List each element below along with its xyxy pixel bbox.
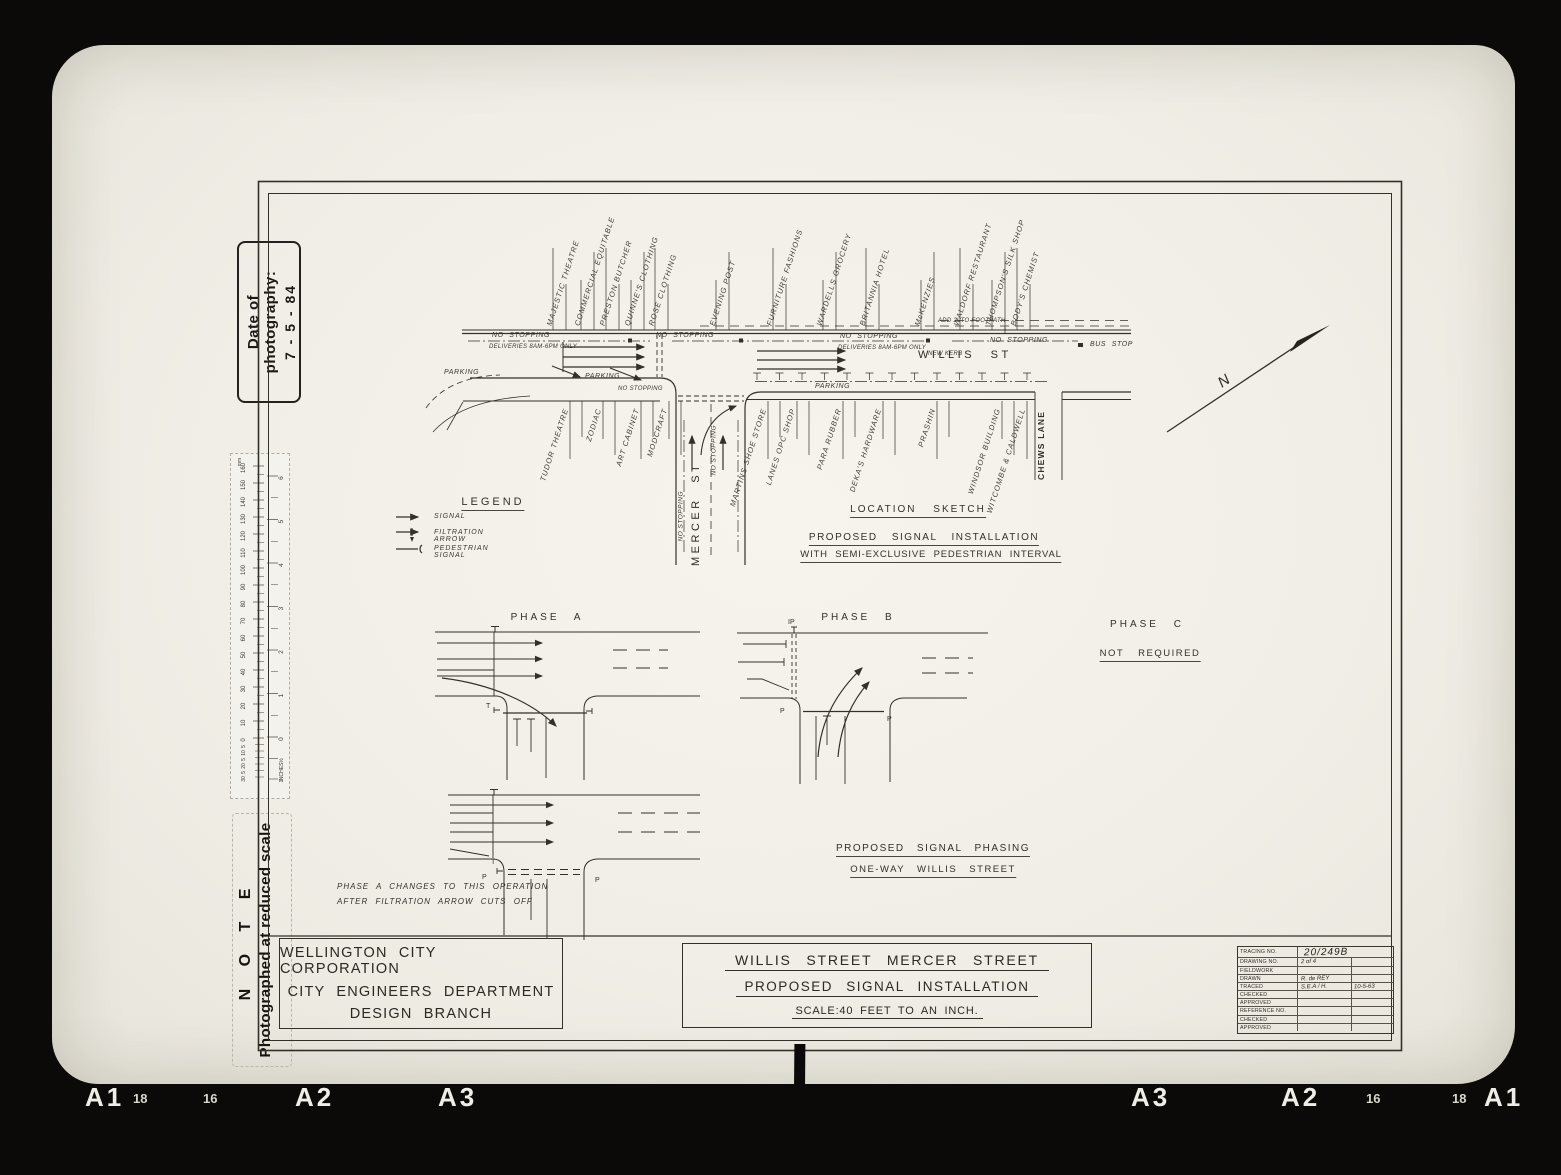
drawing-title-line2: PROPOSED SIGNAL INSTALLATION xyxy=(736,979,1037,997)
phase-b-label: PHASE B xyxy=(821,612,894,623)
drawing-title-box: WILLIS STREET MERCER STREET PROPOSED SIG… xyxy=(682,943,1092,1028)
tracing-row: CHECKED xyxy=(1238,1016,1393,1024)
street-annotation-vertical: CHEWS LANE xyxy=(1036,411,1046,480)
tracing-row-valuecell xyxy=(1298,1016,1351,1023)
tracing-table: TRACING NO.20/249BDRAWING NO.2 of 4FIELD… xyxy=(1237,946,1394,1034)
tracing-row-valuecell2 xyxy=(1351,1024,1393,1031)
film-notch xyxy=(794,1044,806,1136)
building-label-south: LANES OPC SHOP xyxy=(764,407,797,486)
legend-title: LEGEND xyxy=(461,496,524,511)
tracing-row-value: 2 of 4 xyxy=(1301,959,1316,966)
tracing-row-valuecell xyxy=(1298,1024,1351,1031)
org-line2: CITY ENGINEERS DEPARTMENT xyxy=(288,984,555,1000)
street-annotation-vertical: NO STOPPING xyxy=(678,491,685,542)
tracing-row-label: CHECKED xyxy=(1238,991,1298,998)
tracing-row-label: FIELDWORK xyxy=(1238,967,1298,974)
organisation-box: WELLINGTON CITY CORPORATION CITY ENGINEE… xyxy=(279,938,563,1029)
tracing-row-valuecell2 xyxy=(1351,967,1393,974)
filtration-arrow-icon xyxy=(394,527,428,543)
tracing-row-valuecell2: 10-5-63 xyxy=(1351,983,1393,990)
tracing-row-label: DRAWING NO. xyxy=(1238,958,1298,966)
tracing-row: TRACING NO.20/249B xyxy=(1238,947,1393,958)
tracing-row-valuecell xyxy=(1298,1007,1351,1015)
building-label-north: FURNITURE FASHIONS xyxy=(765,228,805,327)
proposed-signal-heading: PROPOSED SIGNAL INSTALLATION xyxy=(809,532,1039,546)
street-annotation: BUS STOP xyxy=(1090,341,1133,348)
signal-phasing-heading: PROPOSED SIGNAL PHASING xyxy=(836,843,1030,857)
tracing-row-valuecell2 xyxy=(1351,1007,1393,1015)
building-label-north: McKENZIES xyxy=(913,276,937,327)
signal-arrow-icon xyxy=(394,511,428,523)
pedestrian-interval-heading: WITH SEMI-EXCLUSIVE PEDESTRIAN INTERVAL xyxy=(800,549,1061,563)
building-label-south: PRASHIN xyxy=(916,407,937,448)
tracing-row-valuecell: R. de REY xyxy=(1298,975,1351,982)
tracing-row-value2: 10-5-63 xyxy=(1354,983,1375,990)
tracing-row-valuecell: 2 of 4 xyxy=(1298,958,1351,966)
tracing-row: DRAWING NO.2 of 4 xyxy=(1238,958,1393,967)
photographed-drawing: Date of photography: 7 - 5 - 84 16015014… xyxy=(0,0,1561,1175)
building-label-north: BODY'S CHEMIST xyxy=(1009,250,1042,327)
tracing-row-valuecell: S.E.A / H. xyxy=(1298,983,1351,990)
tracing-row-valuecell2 xyxy=(1351,999,1393,1006)
drawing-scale: SCALE:40 FEET TO AN INCH. xyxy=(792,1005,983,1019)
pedestrian-signal-icon xyxy=(394,543,428,555)
tracing-row-label: TRACED xyxy=(1238,983,1298,990)
legend-label: PEDESTRIAN SIGNAL xyxy=(434,545,489,559)
building-label-north: EVENING POST xyxy=(708,259,738,327)
tracing-row: CHECKED xyxy=(1238,991,1393,999)
legend-label: FILTRATION ARROW xyxy=(434,529,484,543)
location-sketch-heading: LOCATION SKETCH xyxy=(850,504,986,518)
tracing-row-label: CHECKED xyxy=(1238,1016,1298,1023)
street-annotation: PARKING xyxy=(444,369,479,376)
tracing-row-label: TRACING NO. xyxy=(1238,947,1298,957)
street-annotation: PARKING xyxy=(815,383,850,390)
tracing-row-label: APPROVED xyxy=(1238,1024,1298,1031)
phase-change-note-line1: PHASE A CHANGES TO THIS OPERATION xyxy=(337,882,548,891)
tracing-row-value: S.E.A / H. xyxy=(1301,983,1327,990)
building-label-south: PARA RUBBER xyxy=(815,407,843,471)
tracing-row-valuecell2 xyxy=(1351,1016,1393,1023)
building-label-south: ART CABINET xyxy=(614,407,641,467)
street-annotation: NO STOPPING xyxy=(492,332,550,339)
street-annotation: WILLIS ST xyxy=(918,349,1012,361)
tracing-row-valuecell xyxy=(1298,991,1351,998)
tracing-row: DRAWNR. de REY xyxy=(1238,975,1393,983)
street-annotation: DELIVERIES 8AM-6PM ONLY xyxy=(489,344,577,350)
tracing-row-label: REFERENCE NO. xyxy=(1238,1007,1298,1015)
tracing-row-valuecell2 xyxy=(1351,991,1393,998)
tracing-row-valuecell2 xyxy=(1351,958,1393,966)
tracing-row-value: 20/249B xyxy=(1304,946,1348,958)
building-label-south: ZODIAC xyxy=(584,407,603,442)
street-annotation: DELIVERIES 8AM-6PM ONLY xyxy=(838,345,926,351)
tracing-row-value: R. de REY xyxy=(1301,975,1330,982)
tracing-row: REFERENCE NO. xyxy=(1238,1007,1393,1016)
tracing-row: APPROVED xyxy=(1238,999,1393,1007)
building-label-north: WARDELLS GROCERY xyxy=(815,232,853,327)
building-label-south: DEKA'S HARDWARE xyxy=(848,407,884,493)
tracing-row: FIELDWORK xyxy=(1238,967,1393,975)
tracing-row-valuecell: 20/249B xyxy=(1298,947,1393,958)
building-label-south: TUDOR THEATRE xyxy=(538,407,570,482)
legend-label: SIGNAL xyxy=(434,513,466,520)
building-label-north: BRITANNIA HOTEL xyxy=(858,247,892,327)
street-annotation-vertical: MERCER ST xyxy=(690,462,702,566)
one-way-heading: ONE-WAY WILLIS STREET xyxy=(850,864,1016,878)
street-annotation: NO STOPPING xyxy=(840,333,898,340)
street-annotation: NO STOPPING xyxy=(990,337,1048,344)
street-annotation-vertical: NO STOPPING xyxy=(711,425,718,476)
org-line3: DESIGN BRANCH xyxy=(350,1006,492,1022)
tracing-row-valuecell xyxy=(1298,967,1351,974)
drawing-title-line1: WILLIS STREET MERCER STREET xyxy=(725,952,1049,971)
tracing-row-label: APPROVED xyxy=(1238,999,1298,1006)
street-annotation: NO STOPPING xyxy=(656,332,714,339)
street-annotation: PARKING xyxy=(585,373,620,380)
not-required-label: NOT REQUIRED xyxy=(1100,648,1201,662)
org-line1: WELLINGTON CITY CORPORATION xyxy=(280,945,562,977)
building-label-south: MODCRAFT xyxy=(645,407,669,458)
tracing-row-label: DRAWN xyxy=(1238,975,1298,982)
tracing-row: TRACEDS.E.A / H.10-5-63 xyxy=(1238,983,1393,991)
phase-a-label: PHASE A xyxy=(511,612,584,623)
street-annotation: NO STOPPING xyxy=(618,386,663,392)
phase-change-note-line2: AFTER FILTRATION ARROW CUTS OFF xyxy=(337,897,533,906)
street-annotation: ADD 2' TO FOOTPATH xyxy=(938,318,1006,324)
building-label-south: MARTINS SHOE STORE xyxy=(728,407,768,508)
tracing-row: APPROVED xyxy=(1238,1024,1393,1031)
photo-sheet: Date of photography: 7 - 5 - 84 16015014… xyxy=(52,45,1515,1084)
phase-c-label: PHASE C xyxy=(1110,619,1184,630)
tracing-row-valuecell2 xyxy=(1351,975,1393,982)
tracing-row-valuecell xyxy=(1298,999,1351,1006)
